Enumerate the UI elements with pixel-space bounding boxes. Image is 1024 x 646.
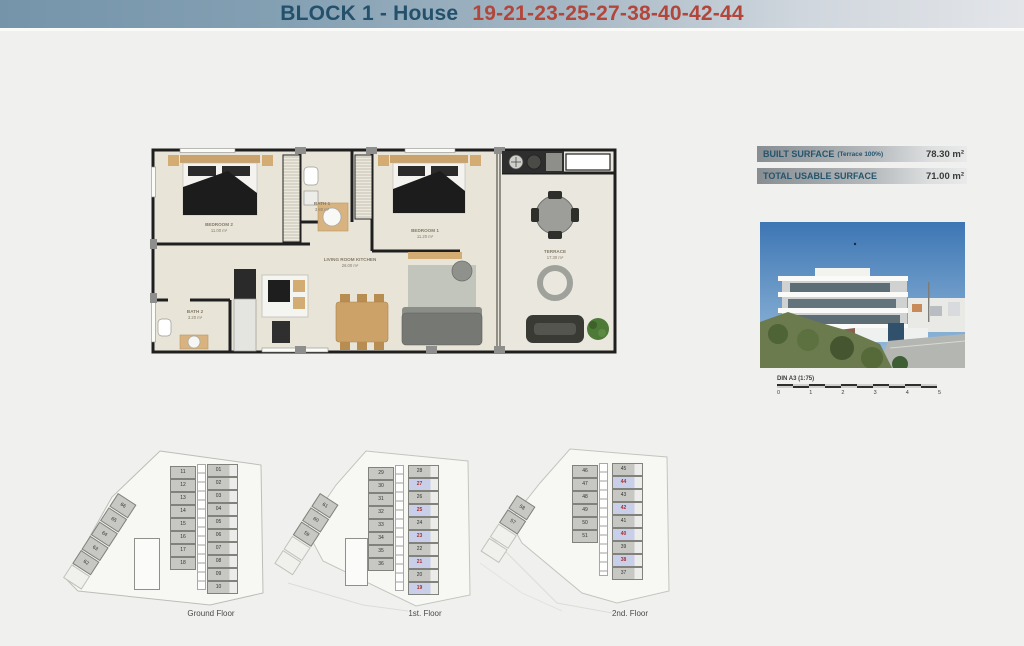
floor-label-first: 1st. Floor [380,609,470,618]
room-area-bedroom1: 11.20 m² [417,234,434,239]
unit-number: 39 [621,545,627,550]
unit-cell: 15 [170,518,196,531]
unit-cell: 30 [368,480,394,493]
unit-number: 12 [180,483,186,488]
floor-label-ground: Ground Floor [166,609,256,618]
scale-label: DIN A3 (1:75) [777,376,942,382]
bedroom2-furniture [168,155,273,215]
scale-tick: 0 [777,390,780,396]
unit-number: 38 [621,558,627,563]
built-surface-value: 78.30 m² [926,149,964,160]
unit-cell-highlighted: 40 [612,528,643,541]
unit-number: 06 [216,533,222,538]
unit-cell: 50 [572,517,598,530]
unit-number: 43 [621,493,627,498]
unit-number: 60 [312,516,319,523]
unit-cell: 22 [408,543,439,556]
unit-cell: 26 [408,491,439,504]
room-area-bath2: 3.20 m² [188,315,203,320]
grill-icon [527,155,541,169]
unit-number: 13 [180,496,186,501]
unit-number: 40 [621,532,627,537]
unit-cell: 28 [408,465,439,478]
unit-number: 37 [621,571,627,576]
unit-cell: 18 [170,557,196,570]
plant [587,318,609,340]
wardrobe-hall [355,155,372,219]
main-floor-plan: BEDROOM 2 11.00 m² BATH 1 3.80 m² BEDROO… [150,147,620,359]
floor-plan-drawing: BEDROOM 2 11.00 m² BATH 1 3.80 m² BEDROO… [150,147,620,359]
unit-number: 16 [180,535,186,540]
living-furniture [402,261,482,345]
unit-number: 47 [582,482,588,487]
unit-number: 44 [621,480,627,485]
unit-number: 45 [621,467,627,472]
unit-cell-highlighted: 25 [408,504,439,517]
title-house-numbers: 19-21-23-25-27-38-40-42-44 [472,2,743,25]
unit-number: 46 [582,469,588,474]
unit-cell: 49 [572,504,598,517]
unit-cell: 04 [207,503,238,516]
unit-number: 48 [582,495,588,500]
unit-number: 31 [378,497,384,502]
scale-bar: DIN A3 (1:75) 0 1 2 3 4 5 [777,376,942,396]
unit-cell: 34 [368,532,394,545]
unit-number: 41 [621,519,627,524]
center-units: 2930313233343536 [368,467,394,571]
unit-cell: 39 [612,541,643,554]
unit-cell: 17 [170,544,196,557]
unit-cell: 33 [368,519,394,532]
unit-cell: 29 [368,467,394,480]
header-bar: BLOCK 1 - House 19-21-23-25-27-38-40-42-… [0,0,1024,31]
unit-number: 11 [180,470,185,475]
unit-cell-highlighted: 44 [612,476,643,489]
unit-cell: 11 [170,466,196,479]
room-area-living: 26.00 m² [342,263,359,268]
usable-surface-value: 71.00 m² [926,171,964,182]
room-label-living: LIVING ROOM KITCHEN [324,257,377,262]
unit-cell: 45 [612,463,643,476]
terrace-utility-band [502,151,610,173]
unit-cell: 37 [612,567,643,580]
unit-cell: 08 [207,555,238,568]
title-block-name: BLOCK 1 - House [280,2,458,25]
unit-number: 63 [91,545,98,552]
unit-cell: 41 [612,515,643,528]
room-label-bedroom1: BEDROOM 1 [411,228,439,233]
room-label-bath1: BATH 1 [314,201,331,206]
unit-cell: 13 [170,492,196,505]
unit-number: 64 [101,531,108,538]
unit-number: 65 [110,516,117,523]
site-plan-second-floor: 5857 464748495051 454443424140393837 2nd… [462,443,682,628]
site-plan-first-floor: 616059 2930313233343536 2827262524232221… [268,443,478,628]
unit-number: 15 [180,522,186,527]
unit-number: 32 [378,510,384,515]
unit-cell: 06 [207,529,238,542]
built-surface-note: (Terrace 100%) [837,151,883,158]
unit-number: 29 [378,471,384,476]
usable-surface-row: TOTAL USABLE SURFACE 71.00 m² [757,168,967,184]
center-units: 464748495051 [572,465,598,543]
unit-number: 21 [417,560,423,565]
unit-number: 30 [378,484,384,489]
unit-cell-highlighted: 42 [612,502,643,515]
unit-cell: 09 [207,568,238,581]
unit-cell: 01 [207,464,238,477]
unit-number: 14 [180,509,186,514]
unit-number: 35 [378,549,384,554]
unit-number: 61 [321,502,328,509]
unit-number: 26 [417,495,423,500]
scale-ticks: 0 1 2 3 4 5 [777,390,941,396]
unit-cell: 48 [572,491,598,504]
stair-core [197,464,206,590]
right-units: 28272625242322212019 [408,465,439,595]
room-label-bedroom2: BEDROOM 2 [205,222,233,227]
scale-tick: 3 [874,390,877,396]
unit-number: 10 [216,585,222,590]
unit-number: 27 [417,482,423,487]
unit-cell: 24 [408,517,439,530]
unit-cell: 47 [572,478,598,491]
unit-cell: 10 [207,581,238,594]
room-area-terrace: 17.30 m² [547,255,564,260]
unit-cell-highlighted: 38 [612,554,643,567]
unit-cell: 46 [572,465,598,478]
unit-number: 07 [216,546,222,551]
unit-number: 25 [417,508,423,513]
scale-tick: 2 [841,390,844,396]
scale-tick: 1 [809,390,812,396]
built-surface-label: BUILT SURFACE [757,149,834,159]
scale-tick: 5 [938,390,941,396]
unit-number: 28 [417,469,423,474]
center-units: 1112131415161718 [170,466,196,570]
courtyard [345,538,368,586]
unit-number: 49 [582,508,588,513]
unit-cell: 51 [572,530,598,543]
room-label-terrace: TERRACE [544,249,566,254]
unit-number: 01 [216,468,222,473]
room-label-bath2: BATH 2 [187,309,204,314]
unit-cell: 35 [368,545,394,558]
unit-number: 66 [119,502,126,509]
unit-cell: 20 [408,569,439,582]
unit-number: 05 [216,520,222,525]
unit-number: 33 [378,523,384,528]
unit-number: 20 [417,573,423,578]
unit-cell: 12 [170,479,196,492]
unit-number: 24 [417,521,423,526]
scale-strip [777,384,937,388]
building-photo [760,222,965,368]
unit-cell: 02 [207,477,238,490]
unit-number: 62 [82,559,89,566]
unit-cell: 16 [170,531,196,544]
site-plan-ground-floor: 6665646362 1112131415161718 010203040506… [58,443,270,628]
unit-number: 57 [509,518,516,525]
unit-number: 09 [216,572,222,577]
unit-number: 02 [216,481,222,486]
unit-number: 22 [417,547,423,552]
unit-number: 59 [303,531,310,538]
unit-number: 03 [216,494,222,499]
built-surface-row: BUILT SURFACE (Terrace 100%) 78.30 m² [757,146,967,162]
unit-cell: 14 [170,505,196,518]
unit-number: 08 [216,559,222,564]
unit-cell-highlighted: 21 [408,556,439,569]
unit-cell: 32 [368,506,394,519]
unit-number: 18 [180,561,186,566]
unit-cell: 43 [612,489,643,502]
unit-number: 23 [417,534,423,539]
usable-surface-label: TOTAL USABLE SURFACE [757,171,877,181]
unit-cell-highlighted: 23 [408,530,439,543]
room-area-bedroom2: 11.00 m² [211,228,228,233]
unit-number: 58 [518,504,525,511]
unit-cell: 05 [207,516,238,529]
unit-number: 04 [216,507,222,512]
wardrobe-bedroom2 [283,155,300,242]
unit-number: 51 [582,534,588,539]
unit-cell: 07 [207,542,238,555]
unit-cell-highlighted: 19 [408,582,439,595]
unit-number: 42 [621,506,627,511]
stair-core [599,463,608,576]
dining-set [336,294,388,350]
unit-cell: 36 [368,558,394,571]
unit-cell: 31 [368,493,394,506]
unit-number: 19 [417,586,423,591]
room-area-bath1: 3.80 m² [315,207,330,212]
unit-number: 17 [180,548,186,553]
pool [134,538,160,590]
floor-label-second: 2nd. Floor [585,609,675,618]
unit-number: 36 [378,562,384,567]
unit-number: 34 [378,536,384,541]
right-units: 454443424140393837 [612,463,643,580]
surface-table: BUILT SURFACE (Terrace 100%) 78.30 m² TO… [757,146,967,190]
unit-cell-highlighted: 27 [408,478,439,491]
brochure-page: BLOCK 1 - House 19-21-23-25-27-38-40-42-… [0,0,1024,646]
scale-tick: 4 [906,390,909,396]
page-title: BLOCK 1 - House 19-21-23-25-27-38-40-42-… [280,1,743,27]
right-units: 01020304050607080910 [207,464,238,594]
unit-number: 50 [582,521,588,526]
stair-core [395,465,404,591]
unit-cell: 03 [207,490,238,503]
